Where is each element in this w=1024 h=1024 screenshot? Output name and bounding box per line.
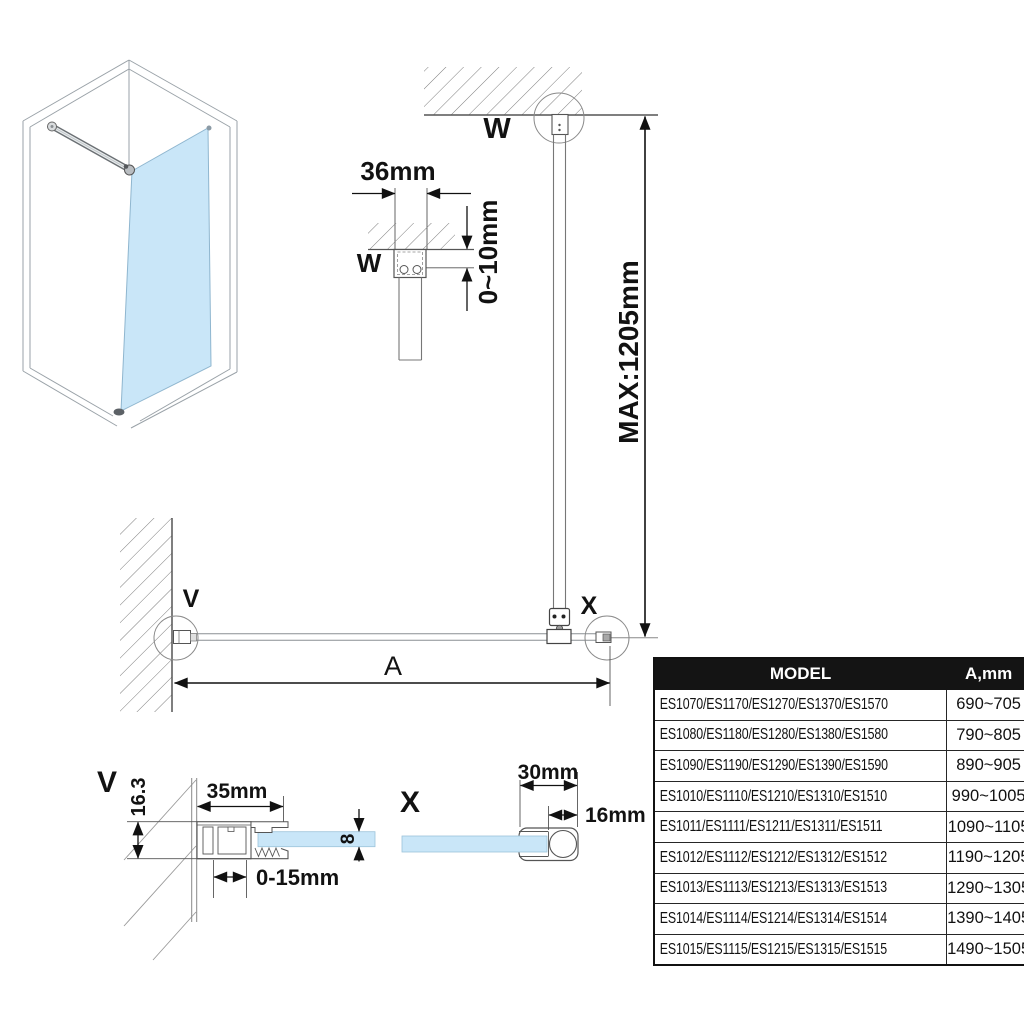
model-dimension-table: MODEL A,mm ES1070/ES1170/ES1270/ES1370/E…	[653, 657, 1024, 966]
a-range: 1390~1405	[947, 904, 1024, 935]
ceiling-section: W	[424, 67, 658, 145]
dim-16mm: 16mm	[549, 804, 646, 830]
detail-v: V 16.3 35mm 8	[97, 766, 375, 960]
max-height-label: MAX:1205mm	[613, 260, 644, 444]
dim-8: 8	[338, 809, 359, 862]
a-range: 1490~1505	[947, 934, 1024, 965]
table-row: ES1010/ES1110/ES1210/ES1310/ES1510 990~1…	[654, 781, 1024, 812]
support-bar-isometric	[48, 122, 135, 175]
bracket-width-label: 36mm	[360, 156, 435, 186]
adjustment-range-label: 0-15mm	[256, 865, 339, 890]
dim-0-15mm: 0-15mm	[214, 860, 340, 898]
span-a-label: A	[384, 651, 402, 681]
glass-end-fitting	[596, 632, 611, 643]
callout-label-v-detail: V	[97, 766, 117, 799]
model-codes: ES1080/ES1180/ES1280/ES1380/ES1580	[655, 726, 888, 744]
model-codes: ES1011/ES1111/ES1211/ES1311/ES1511	[655, 818, 882, 836]
a-range: 1090~1105	[947, 812, 1024, 843]
glass-clamp	[547, 630, 571, 644]
model-codes: ES1090/ES1190/ES1290/ES1390/ES1590	[655, 757, 888, 775]
table-header: MODEL A,mm	[654, 658, 1024, 690]
dim-0-10mm: 0~10mm	[467, 200, 503, 311]
table-row: ES1080/ES1180/ES1280/ES1380/ES1580 790~8…	[654, 720, 1024, 751]
model-codes: ES1014/ES1114/ES1214/ES1314/ES1514	[655, 910, 887, 928]
wall-profile-fitting	[174, 631, 197, 644]
table-row: ES1015/ES1115/ES1215/ES1315/ES1515 1490~…	[654, 934, 1024, 965]
glass-foot	[114, 409, 125, 416]
dim-max-height: MAX:1205mm	[611, 117, 658, 638]
callout-label-x: X	[581, 592, 598, 620]
profile-depth-label: 16.3	[128, 778, 150, 817]
table-row: ES1013/ES1113/ES1213/ES1313/ES1513 1290~…	[654, 873, 1024, 904]
wall-profile-section	[197, 822, 251, 859]
ceiling-hatch	[424, 67, 582, 115]
model-codes: ES1070/ES1170/ES1270/ES1370/ES1570	[655, 696, 888, 714]
glass-section-x	[402, 836, 547, 852]
a-range: 1290~1305	[947, 873, 1024, 904]
clamp-top-arm	[251, 822, 288, 833]
a-range: 890~905	[947, 751, 1024, 782]
model-codes: ES1010/ES1110/ES1210/ES1310/ES1510	[655, 788, 887, 806]
table-row: ES1090/ES1190/ES1290/ES1390/ES1590 890~9…	[654, 751, 1024, 782]
a-range: 690~705	[947, 690, 1024, 721]
callout-label-x-detail: X	[400, 786, 420, 819]
screw-hole	[413, 266, 421, 274]
shower-panel-installation-diagram: W MAX:1205mm 36mm 0~10mm W	[0, 0, 1024, 1024]
a-range: 790~805	[947, 720, 1024, 751]
detail-w: 36mm 0~10mm W	[352, 156, 503, 360]
plan-view: V X A	[120, 518, 629, 712]
table-row: ES1014/ES1114/ES1214/ES1314/ES1514 1390~…	[654, 904, 1024, 935]
table-row: ES1011/ES1111/ES1211/ES1311/ES1511 1090~…	[654, 812, 1024, 843]
screw-hole	[400, 266, 408, 274]
callout-label-v: V	[183, 585, 200, 613]
bar-diameter-label: 16mm	[585, 804, 646, 827]
wall-hatch	[120, 518, 172, 712]
support-bar-elevation	[554, 135, 566, 609]
model-codes: ES1012/ES1112/ES1212/ES1312/ES1512	[655, 849, 887, 867]
ceiling-gap-label: 0~10mm	[473, 200, 503, 305]
callout-label-w: W	[483, 113, 511, 145]
table-row: ES1012/ES1112/ES1212/ES1312/ES1512 1190~…	[654, 842, 1024, 873]
glass-top-corner-fitting	[207, 126, 212, 131]
dim-30mm: 30mm	[518, 761, 579, 827]
dim-35mm: 35mm	[198, 780, 284, 822]
a-range: 990~1005	[947, 781, 1024, 812]
dim-a: A	[175, 646, 611, 706]
isometric-view	[23, 60, 237, 428]
detail-x: X 30mm 16mm	[400, 761, 646, 861]
dim-36mm: 36mm	[352, 156, 471, 194]
bar-cross-section	[550, 831, 577, 858]
table-row: ES1070/ES1170/ES1270/ES1370/ES1570 690~7…	[654, 690, 1024, 721]
bar-bottom-bracket	[550, 609, 570, 632]
gasket-serration	[255, 848, 280, 857]
detail-w-hatch	[368, 223, 455, 249]
model-codes: ES1015/ES1115/ES1215/ES1315/ES1515	[655, 941, 887, 959]
table-header-model: MODEL	[654, 658, 947, 690]
table-header-a: A,mm	[947, 658, 1024, 690]
model-codes: ES1013/ES1113/ES1213/ES1313/ES1513	[655, 879, 887, 897]
glass-thickness-label: 8	[338, 834, 359, 845]
callout-label-w-detail: W	[357, 248, 382, 278]
detail-w-bracket	[394, 250, 426, 278]
clamp-width-label: 30mm	[518, 761, 579, 784]
profile-width-label: 35mm	[207, 780, 268, 803]
a-range: 1190~1205	[947, 842, 1024, 873]
